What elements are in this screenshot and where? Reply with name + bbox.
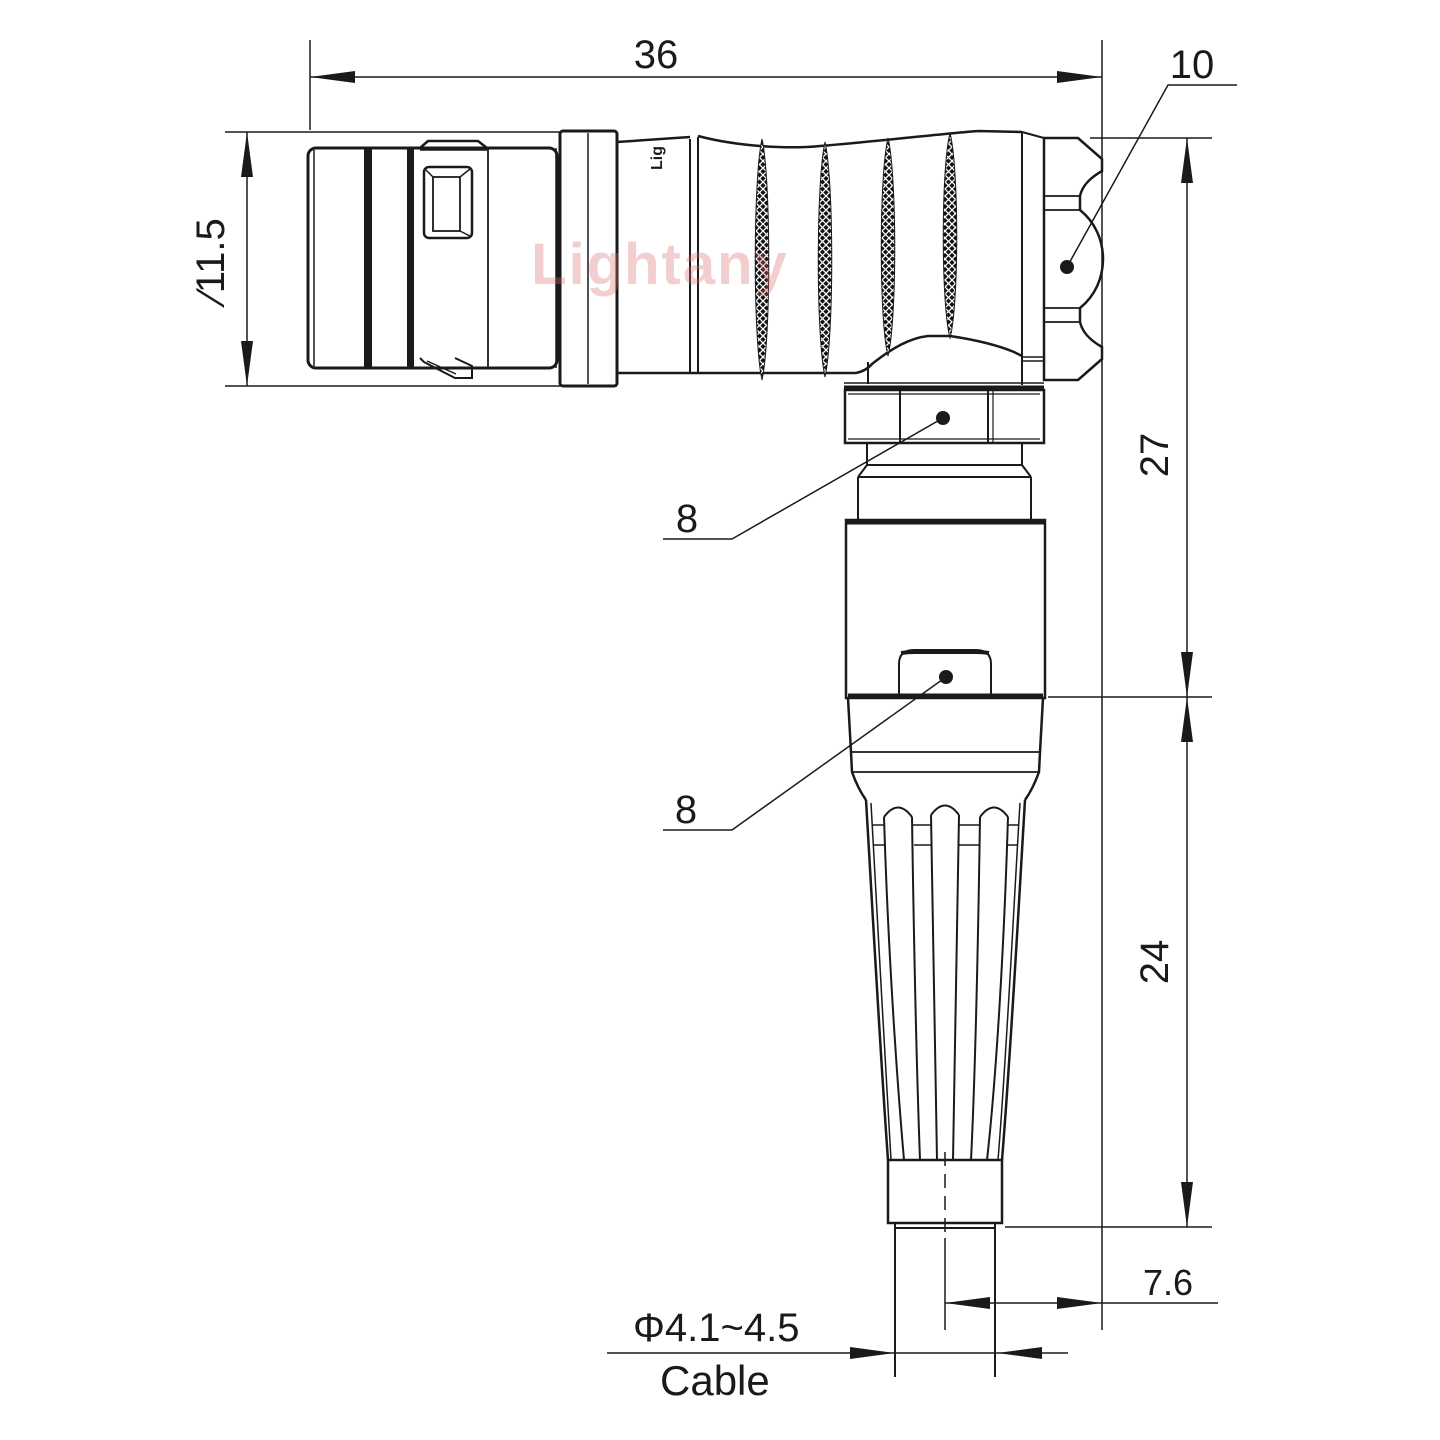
boot-upper-right xyxy=(1025,698,1043,800)
neck-band-top xyxy=(1022,132,1044,138)
gland-bottom-contour xyxy=(698,336,1022,373)
arrow-24-bottom xyxy=(1181,1182,1193,1227)
arrow-d115-bottom xyxy=(241,341,253,386)
boot-taper-right-outer xyxy=(1002,800,1025,1160)
arrow-27-bottom xyxy=(1181,652,1193,697)
technical-drawing-page: 36 10 ∕11.5 27 24 8 8 7.6 Φ4.1~4.5 Cable… xyxy=(0,0,1440,1440)
label-cable: Cable xyxy=(660,1357,770,1404)
knurl-band-3 xyxy=(881,138,895,356)
dim-text-cable-diameter: Φ4.1~4.5 xyxy=(633,1306,799,1350)
dim-text-76: 7.6 xyxy=(1143,1262,1193,1303)
vertical-body xyxy=(844,362,1045,1377)
arrow-cable-right xyxy=(997,1347,1042,1359)
boot-groove-lines xyxy=(873,825,1019,845)
dim-text-8-bottom: 8 xyxy=(675,788,697,832)
dim-text-36: 36 xyxy=(634,33,679,77)
boot-ribs xyxy=(884,806,1008,1161)
knurl-band-4 xyxy=(943,133,957,338)
main-cylinder-top-band xyxy=(846,520,1045,525)
dim-text-d115: ∕11.5 xyxy=(189,218,233,309)
arrow-27-top xyxy=(1181,138,1193,183)
boot-seam-band xyxy=(848,694,1043,699)
coupling-nut-profile xyxy=(1044,138,1103,380)
connector-drawing-svg: 36 10 ∕11.5 27 24 8 8 7.6 Φ4.1~4.5 Cable… xyxy=(0,0,1440,1440)
knurl-band-2 xyxy=(818,142,832,377)
gland-top-contour xyxy=(698,131,1022,147)
arrow-36-right xyxy=(1057,71,1102,83)
arrow-76-left xyxy=(945,1297,990,1309)
boot-upper-left xyxy=(848,698,866,800)
leader-dot-8-bottom xyxy=(939,670,953,684)
boot-taper-left-inner xyxy=(871,803,891,1160)
watermark-text: Lightany xyxy=(531,232,789,297)
arrow-36-left xyxy=(310,71,355,83)
dim-text-8-top: 8 xyxy=(676,497,698,541)
arrow-cable-left xyxy=(850,1347,895,1359)
ferrule xyxy=(888,1160,1002,1223)
dim-text-27: 27 xyxy=(1133,433,1177,478)
arrow-d115-top xyxy=(241,132,253,177)
brand-mark-text: Lig xyxy=(649,146,666,170)
dim-text-10: 10 xyxy=(1170,43,1215,87)
neck xyxy=(867,443,1022,465)
shell-dark-band-2 xyxy=(407,149,414,367)
upper-cylinder xyxy=(858,477,1031,520)
arrow-24-top xyxy=(1181,697,1193,742)
dim-text-24: 24 xyxy=(1133,940,1177,985)
leader-dot-8-top xyxy=(936,411,950,425)
shoulder-right xyxy=(1022,465,1031,477)
leader-8-bottom xyxy=(663,677,946,830)
shell-dark-band-1 xyxy=(364,149,372,367)
leader-dot-10 xyxy=(1060,260,1074,274)
arrow-76-right xyxy=(1057,1297,1102,1309)
mid-section-top xyxy=(617,137,690,142)
clamp-window-top-edge xyxy=(901,652,989,653)
neck-band-lines xyxy=(1022,357,1044,361)
